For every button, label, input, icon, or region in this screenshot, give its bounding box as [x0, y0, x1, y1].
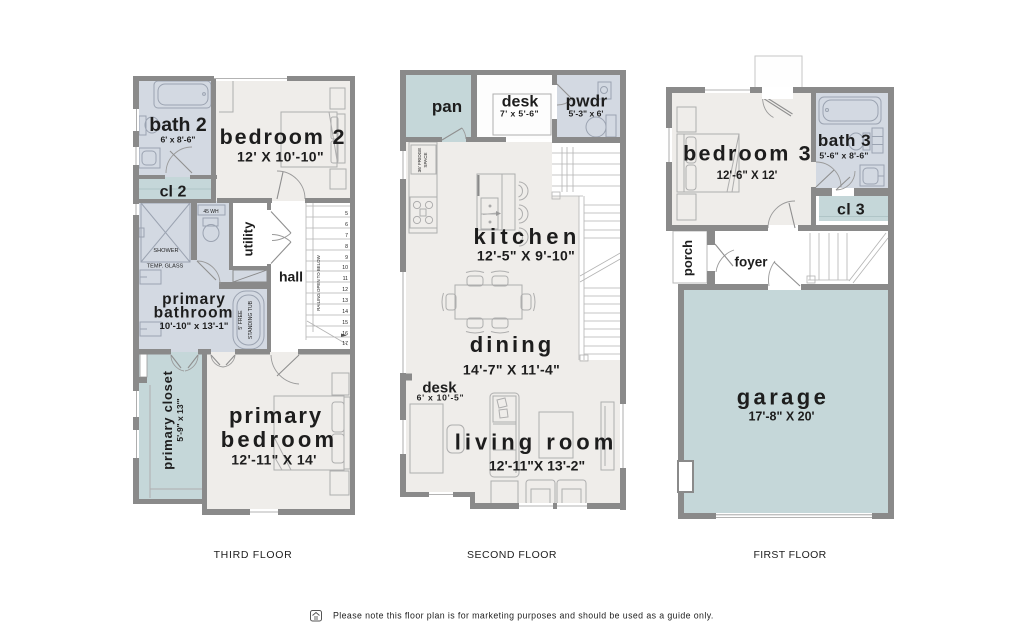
- svg-text:FIRST FLOOR: FIRST FLOOR: [753, 549, 826, 561]
- svg-text:12: 12: [342, 287, 348, 293]
- svg-text:cl 2: cl 2: [160, 184, 187, 201]
- svg-text:TEMP. GLASS: TEMP. GLASS: [147, 264, 184, 270]
- svg-text:7' x 5'-6": 7' x 5'-6": [500, 109, 539, 119]
- svg-text:45 WH: 45 WH: [203, 209, 219, 215]
- svg-text:7: 7: [345, 233, 348, 239]
- svg-text:garage: garage: [737, 385, 830, 410]
- svg-text:SPACE: SPACE: [423, 152, 428, 167]
- svg-text:kitchen: kitchen: [473, 224, 580, 249]
- svg-text:STANDING TUB: STANDING TUB: [248, 300, 254, 339]
- svg-text:17'-8" X 20': 17'-8" X 20': [748, 410, 814, 424]
- svg-text:utility: utility: [241, 221, 256, 256]
- svg-text:primary closet: primary closet: [160, 370, 175, 469]
- svg-text:12'-6" X 12': 12'-6" X 12': [717, 170, 778, 182]
- svg-text:6' x 10'-5": 6' x 10'-5": [417, 393, 465, 403]
- svg-text:5'-9" x 13'": 5'-9" x 13'": [175, 398, 185, 441]
- svg-text:dining: dining: [470, 332, 555, 357]
- svg-text:RAILING OPEN TO BELOW: RAILING OPEN TO BELOW: [316, 254, 321, 310]
- svg-text:bathroom: bathroom: [154, 305, 234, 322]
- svg-text:14: 14: [342, 309, 348, 315]
- svg-text:14'-7" X 11'-4": 14'-7" X 11'-4": [463, 362, 560, 378]
- svg-text:pan: pan: [432, 97, 462, 116]
- svg-text:5'-6" x 8'-6": 5'-6" x 8'-6": [819, 151, 868, 161]
- svg-text:6: 6: [345, 222, 348, 228]
- svg-text:Please note this floor plan is: Please note this floor plan is for marke…: [333, 611, 714, 621]
- svg-text:bath 3: bath 3: [818, 131, 871, 150]
- svg-text:12' X 10'-10": 12' X 10'-10": [237, 149, 324, 165]
- svg-text:12'-5" X 9'-10": 12'-5" X 9'-10": [477, 248, 575, 264]
- svg-text:10: 10: [342, 265, 348, 271]
- svg-text:THIRD FLOOR: THIRD FLOOR: [214, 549, 293, 561]
- svg-text:SECOND FLOOR: SECOND FLOOR: [467, 549, 557, 561]
- svg-text:5'-3" x 6': 5'-3" x 6': [569, 109, 604, 119]
- svg-text:bath 2: bath 2: [149, 114, 207, 136]
- svg-text:bedroom: bedroom: [221, 427, 338, 452]
- svg-text:hall: hall: [279, 269, 303, 285]
- svg-text:10'-10" x 13'-1": 10'-10" x 13'-1": [160, 321, 229, 332]
- svg-text:36' FRIDGE: 36' FRIDGE: [417, 148, 422, 173]
- svg-text:16: 16: [342, 331, 348, 337]
- svg-text:17: 17: [342, 341, 348, 347]
- svg-text:living room: living room: [455, 430, 618, 455]
- svg-text:15: 15: [342, 320, 348, 326]
- svg-text:12'-11" X 14': 12'-11" X 14': [231, 452, 317, 468]
- svg-text:SHOWER: SHOWER: [153, 248, 178, 254]
- svg-text:porch: porch: [680, 240, 695, 276]
- svg-text:13: 13: [342, 298, 348, 304]
- svg-text:6' x 8'-6": 6' x 8'-6": [161, 135, 196, 145]
- svg-text:9: 9: [345, 255, 348, 261]
- svg-text:8: 8: [345, 244, 348, 250]
- svg-text:5: 5: [345, 211, 348, 217]
- svg-text:foyer: foyer: [734, 255, 768, 270]
- svg-text:bedroom 2: bedroom 2: [220, 125, 347, 149]
- svg-text:11: 11: [343, 276, 348, 282]
- svg-text:5' FREE: 5' FREE: [238, 310, 244, 330]
- svg-text:bedroom 3: bedroom 3: [683, 142, 813, 166]
- svg-text:primary: primary: [229, 403, 323, 428]
- svg-text:12'-11"X 13'-2": 12'-11"X 13'-2": [489, 458, 585, 474]
- svg-text:cl 3: cl 3: [837, 202, 865, 219]
